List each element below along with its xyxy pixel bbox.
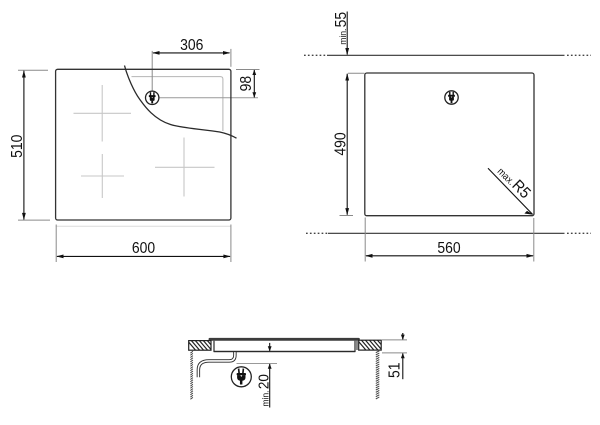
svg-text:600: 600 bbox=[132, 240, 155, 257]
svg-text:510: 510 bbox=[9, 135, 26, 158]
svg-text:490: 490 bbox=[333, 132, 350, 155]
svg-text:max.R5: max.R5 bbox=[494, 162, 534, 202]
svg-text:560: 560 bbox=[437, 240, 460, 257]
svg-text:98: 98 bbox=[238, 76, 255, 92]
svg-text:306: 306 bbox=[180, 38, 203, 55]
svg-text:51: 51 bbox=[387, 362, 404, 378]
